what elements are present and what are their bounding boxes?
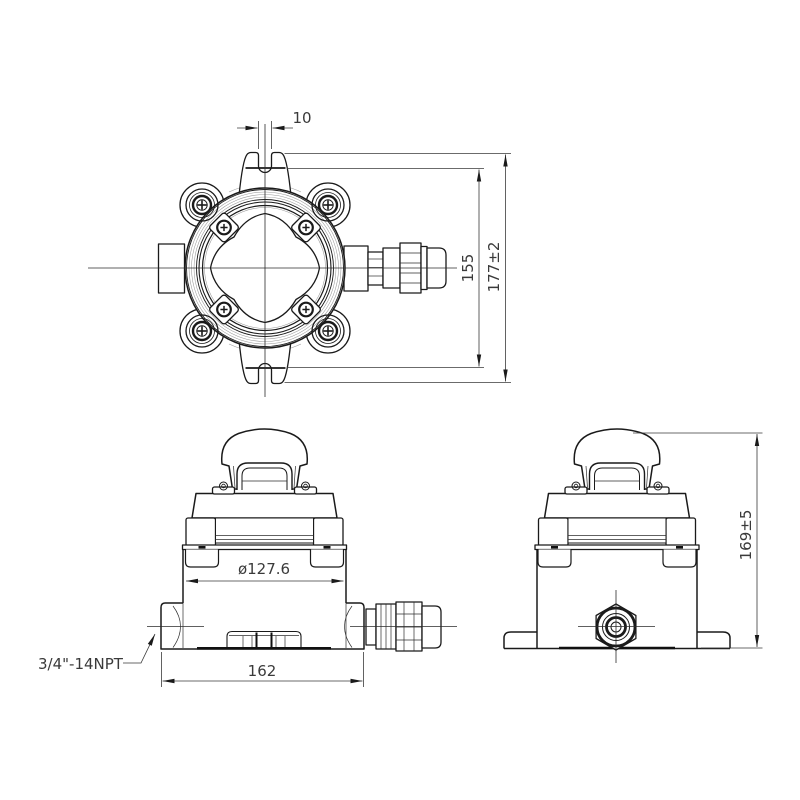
dim-side-height-text: 169±5: [737, 510, 755, 561]
thread-label-text: 3/4"-14NPT: [38, 655, 124, 673]
dimension-flange-width: 162: [162, 652, 364, 687]
cap-assembly-front: [183, 429, 347, 567]
bottom-tab: [227, 632, 301, 650]
thread-callout: 3/4"-14NPT: [38, 634, 155, 673]
right-port-stub: [344, 246, 368, 291]
left-port-stub: [159, 244, 185, 293]
front-view: [147, 429, 457, 651]
side-view: [504, 429, 730, 663]
cap-assembly-side: [535, 429, 699, 567]
dim-slot-width-text: 10: [292, 109, 311, 127]
dim-overall-height-text: 177±2: [485, 242, 503, 293]
foot-right: [697, 632, 730, 649]
top-view: [88, 124, 457, 397]
dim-inner-height-text: 155: [459, 254, 477, 283]
entry-port-side: [578, 590, 655, 663]
dim-flange-width-text: 162: [248, 662, 277, 680]
technical-drawing-page: 10 155 177±2: [0, 0, 800, 800]
dim-diameter-text: ø127.6: [238, 560, 290, 578]
foot-left: [504, 632, 537, 649]
dimension-slot-width: 10: [237, 109, 312, 149]
engineering-drawing: 10 155 177±2: [0, 0, 800, 800]
